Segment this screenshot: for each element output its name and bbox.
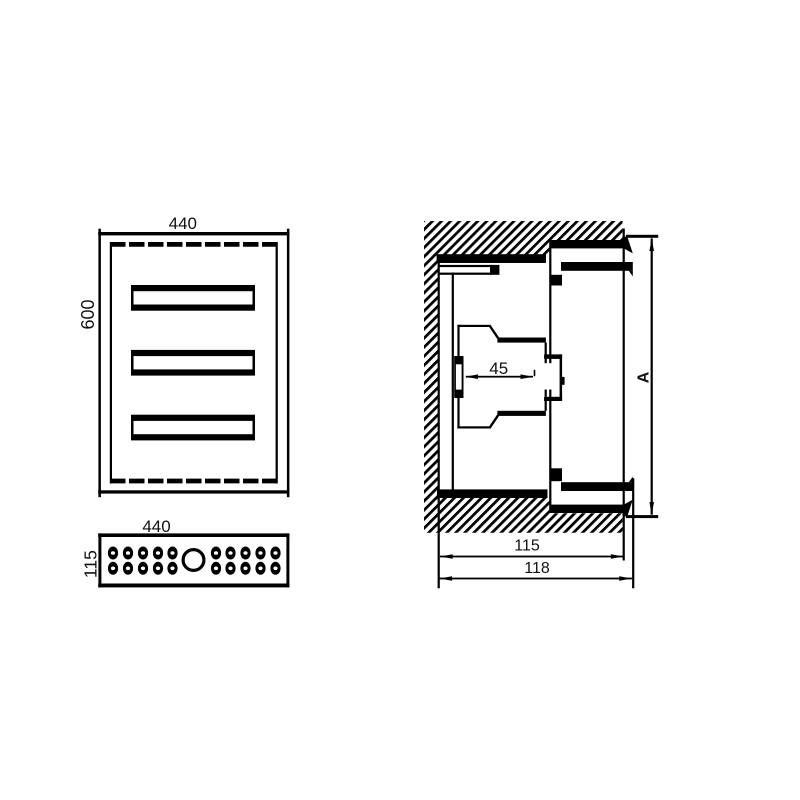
svg-text:118: 118 <box>524 560 550 577</box>
svg-text:115: 115 <box>514 538 540 555</box>
svg-text:115: 115 <box>81 550 101 578</box>
svg-text:600: 600 <box>78 299 98 329</box>
svg-text:440: 440 <box>142 517 170 536</box>
svg-text:A: A <box>636 371 653 383</box>
svg-text:440: 440 <box>169 214 197 233</box>
svg-text:45: 45 <box>489 359 508 378</box>
